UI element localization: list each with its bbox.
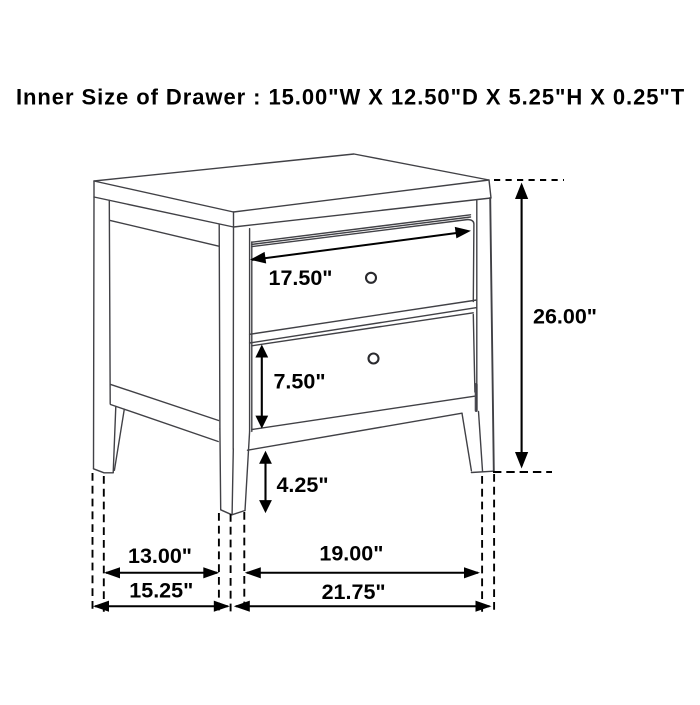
svg-text:7.50": 7.50" (273, 370, 325, 394)
svg-text:15.25": 15.25" (129, 579, 193, 603)
svg-text:4.25": 4.25" (276, 473, 328, 497)
svg-text:21.75": 21.75" (322, 580, 386, 604)
svg-text:13.00": 13.00" (128, 544, 192, 568)
svg-text:Inner Size of Drawer : 15.00"W: Inner Size of Drawer : 15.00"W X 12.50"D… (16, 85, 685, 110)
svg-text:19.00": 19.00" (319, 542, 383, 566)
svg-text:17.50": 17.50" (269, 266, 333, 290)
svg-text:26.00": 26.00" (533, 305, 597, 329)
